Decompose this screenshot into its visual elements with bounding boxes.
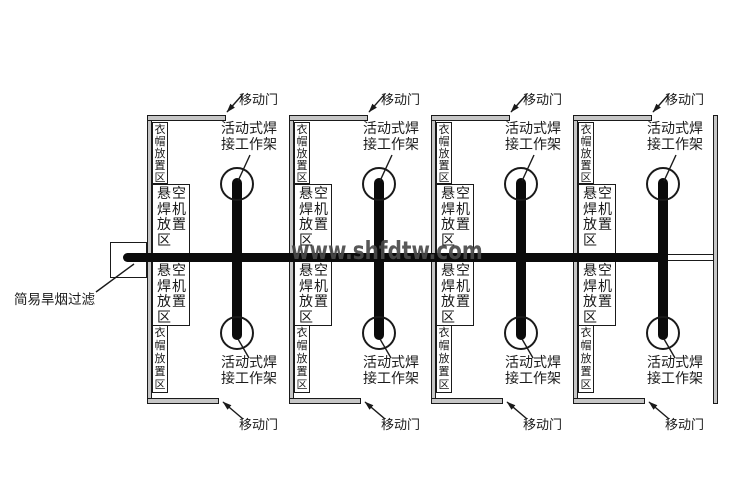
bay-top-wall — [573, 115, 652, 121]
work-rack-label-line1: 活动式焊 — [360, 356, 422, 372]
work-rack-circle-bottom — [646, 316, 680, 350]
work-rack-label-bottom: 活动式焊 接工作架 — [502, 356, 564, 388]
work-rack-label-line1: 活动式焊 — [218, 356, 280, 372]
mobile-door-label-top: 移动门 — [381, 89, 420, 108]
work-rack-label-line1: 活动式焊 — [502, 122, 564, 138]
bay-bottom-wall — [147, 398, 219, 404]
welding-bay-2: 移动门 衣帽放置区 悬空焊机放置区 悬空焊机放置区 衣帽放置区 活动式焊 接工作… — [289, 85, 431, 445]
work-rack-label-bottom: 活动式焊 接工作架 — [644, 356, 706, 388]
smoke-filter-label: 简易旱烟过滤 — [14, 288, 95, 308]
welder-area-box-lower: 悬空焊机放置区 — [578, 261, 616, 326]
work-rack-label-line2: 接工作架 — [502, 372, 564, 388]
mobile-door-label-bottom: 移动门 — [665, 414, 704, 433]
bay-bottom-wall — [289, 398, 361, 404]
work-rack-label-line2: 接工作架 — [360, 372, 422, 388]
work-rack-label-top: 活动式焊 接工作架 — [502, 122, 564, 154]
welding-bay-3: 移动门 衣帽放置区 悬空焊机放置区 悬空焊机放置区 衣帽放置区 活动式焊 接工作… — [431, 85, 573, 445]
welder-area-box-lower: 悬空焊机放置区 — [436, 261, 474, 326]
work-rack-circle-top — [362, 167, 396, 201]
work-rack-label-line2: 接工作架 — [502, 138, 564, 154]
welder-area-box-lower: 悬空焊机放置区 — [294, 261, 332, 326]
work-rack-label-line1: 活动式焊 — [644, 122, 706, 138]
watermark: www.shfdtw.com — [291, 236, 483, 265]
work-rack-label-line2: 接工作架 — [644, 372, 706, 388]
cloak-area-box-bottom: 衣帽放置区 — [578, 325, 594, 393]
cloak-area-box-top: 衣帽放置区 — [578, 122, 594, 184]
work-rack-label-line1: 活动式焊 — [502, 356, 564, 372]
mobile-door-label-bottom: 移动门 — [381, 414, 420, 433]
welding-bay-4: 移动门 衣帽放置区 悬空焊机放置区 悬空焊机放置区 衣帽放置区 活动式焊 接工作… — [573, 85, 715, 445]
welder-area-box-upper: 悬空焊机放置区 — [578, 184, 616, 257]
work-rack-label-bottom: 活动式焊 接工作架 — [218, 356, 280, 388]
mobile-door-label-top: 移动门 — [523, 89, 562, 108]
mobile-door-label-top: 移动门 — [239, 89, 278, 108]
bay-top-wall — [289, 115, 368, 121]
work-rack-label-line2: 接工作架 — [644, 138, 706, 154]
work-rack-label-bottom: 活动式焊 接工作架 — [360, 356, 422, 388]
duct-wall-connector — [666, 254, 714, 261]
cloak-area-box-bottom: 衣帽放置区 — [436, 325, 452, 393]
work-rack-label-line2: 接工作架 — [218, 138, 280, 154]
work-rack-circle-top — [220, 167, 254, 201]
cloak-area-box-top: 衣帽放置区 — [294, 122, 310, 184]
mobile-door-label-top: 移动门 — [665, 89, 704, 108]
mobile-door-label-bottom: 移动门 — [239, 414, 278, 433]
welding-bay-1: 移动门 衣帽放置区 悬空焊机放置区 悬空焊机放置区 衣帽放置区 活动式焊 接工作… — [147, 85, 289, 445]
work-rack-label-line1: 活动式焊 — [360, 122, 422, 138]
work-rack-label-line2: 接工作架 — [218, 372, 280, 388]
work-rack-circle-bottom — [362, 316, 396, 350]
work-rack-label-line1: 活动式焊 — [218, 122, 280, 138]
work-rack-label-top: 活动式焊 接工作架 — [644, 122, 706, 154]
bay-top-wall — [431, 115, 510, 121]
cloak-area-box-bottom: 衣帽放置区 — [294, 325, 310, 393]
work-rack-label-top: 活动式焊 接工作架 — [360, 122, 422, 154]
bay-bottom-wall — [431, 398, 503, 404]
welder-area-box-upper: 悬空焊机放置区 — [152, 184, 190, 257]
work-rack-circle-bottom — [504, 316, 538, 350]
welder-area-box-lower: 悬空焊机放置区 — [152, 261, 190, 326]
cloak-area-box-bottom: 衣帽放置区 — [152, 325, 168, 393]
work-rack-circle-bottom — [220, 316, 254, 350]
work-rack-circle-top — [504, 167, 538, 201]
work-rack-label-line1: 活动式焊 — [644, 356, 706, 372]
work-rack-label-top: 活动式焊 接工作架 — [218, 122, 280, 154]
work-rack-circle-top — [646, 167, 680, 201]
cloak-area-box-top: 衣帽放置区 — [436, 122, 452, 184]
workshop-layout-diagram: 移动门 衣帽放置区 悬空焊机放置区 悬空焊机放置区 衣帽放置区 活动式焊 接工作… — [0, 0, 750, 499]
cloak-area-box-top: 衣帽放置区 — [152, 122, 168, 184]
work-rack-label-line2: 接工作架 — [360, 138, 422, 154]
mobile-door-label-bottom: 移动门 — [523, 414, 562, 433]
bay-top-wall — [147, 115, 226, 121]
bay-bottom-wall — [573, 398, 645, 404]
